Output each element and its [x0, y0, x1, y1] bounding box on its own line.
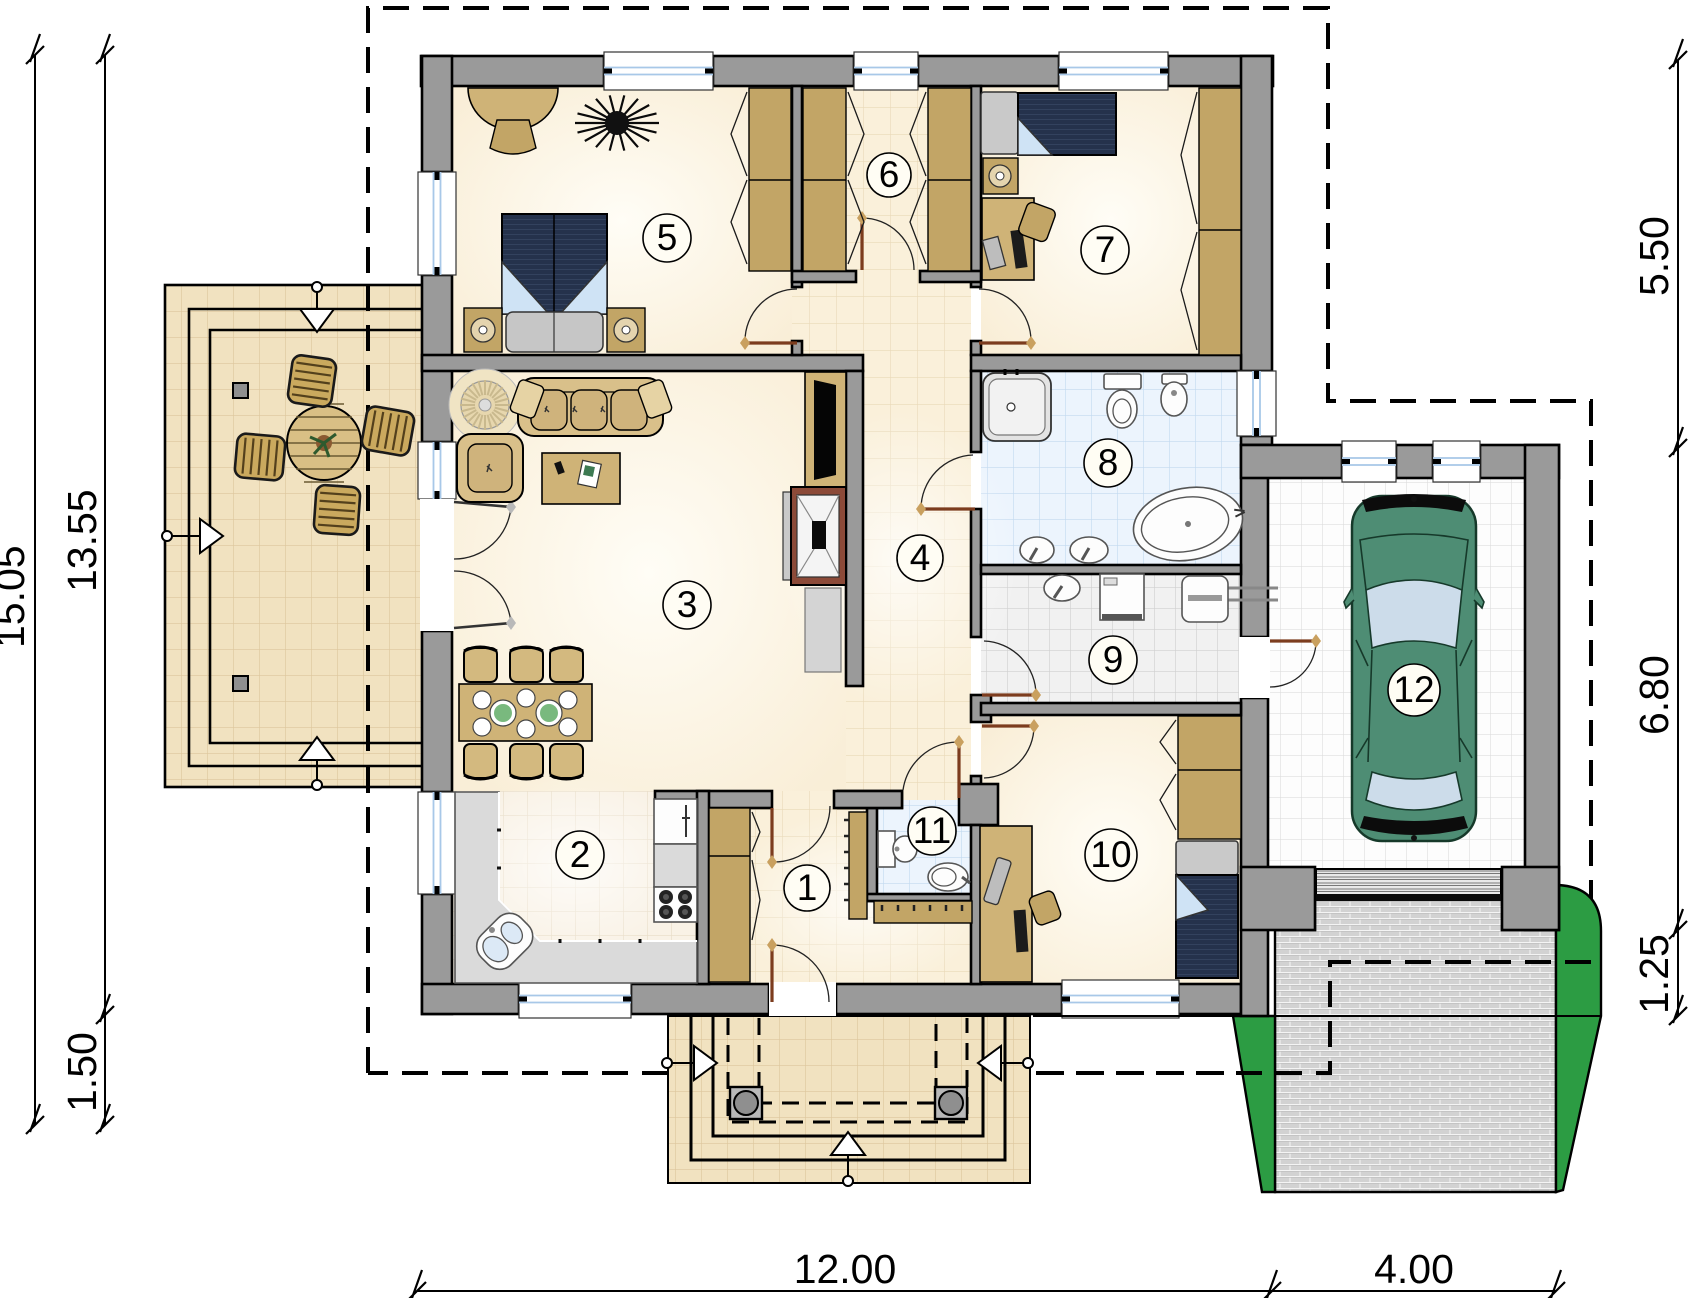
- svg-text:12.00: 12.00: [794, 1246, 897, 1292]
- svg-text:7: 7: [1095, 229, 1116, 270]
- svg-text:8: 8: [1098, 442, 1119, 483]
- svg-text:13.55: 13.55: [59, 489, 105, 592]
- svg-text:3: 3: [677, 584, 698, 625]
- svg-text:11: 11: [913, 810, 951, 851]
- svg-text:6.80: 6.80: [1631, 655, 1677, 735]
- svg-text:4.00: 4.00: [1374, 1246, 1454, 1292]
- svg-text:5.50: 5.50: [1631, 216, 1677, 296]
- svg-text:6: 6: [879, 154, 900, 195]
- svg-text:1.50: 1.50: [59, 1032, 105, 1112]
- svg-text:1: 1: [797, 867, 818, 908]
- svg-text:2: 2: [570, 834, 591, 875]
- svg-text:10: 10: [1090, 834, 1131, 875]
- svg-text:15.05: 15.05: [0, 545, 33, 648]
- svg-text:4: 4: [910, 537, 931, 578]
- svg-text:9: 9: [1103, 639, 1124, 680]
- svg-text:5: 5: [657, 217, 678, 258]
- svg-text:12: 12: [1393, 669, 1434, 710]
- svg-text:1.25: 1.25: [1631, 934, 1677, 1014]
